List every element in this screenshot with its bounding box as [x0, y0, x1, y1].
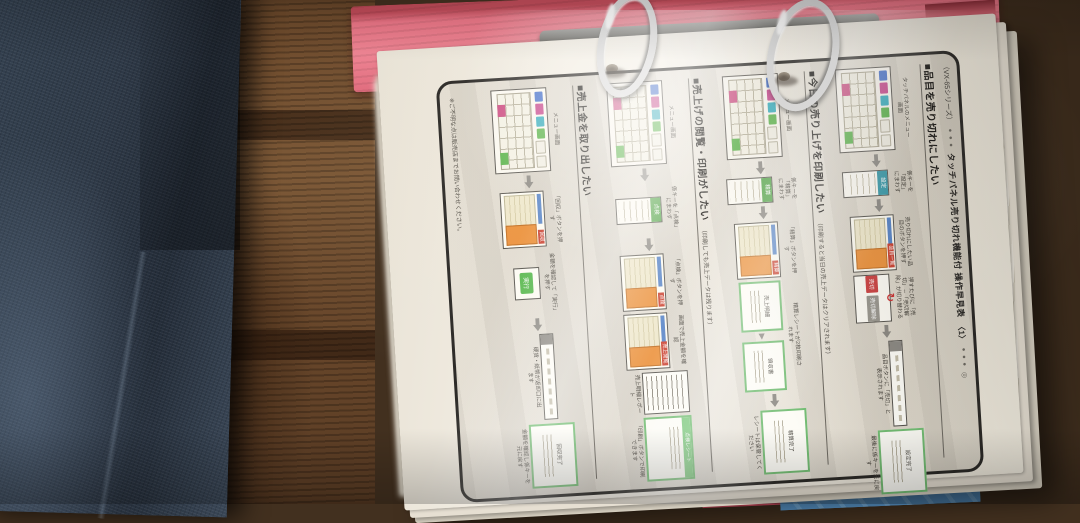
rotate-arrow-icon: ↻	[884, 293, 898, 303]
printout-strip	[888, 340, 907, 427]
screen-label: 売上閲覧	[661, 341, 668, 365]
key-icon	[879, 70, 888, 81]
flow-step: 設定完了最後に係キーを元に戻す	[862, 428, 928, 496]
key-icon	[652, 148, 663, 161]
step-annotation: 金額を確認し係キーを元に戻す	[513, 427, 530, 487]
green-box-label: 設定完了	[904, 449, 913, 471]
screen-header	[771, 224, 777, 254]
clear-button: 売切解除	[867, 295, 881, 322]
result-green-box: 精算完了	[760, 408, 810, 475]
screen-label: 精算	[772, 260, 779, 274]
soldout-button: 売切	[865, 275, 878, 293]
flow-step	[870, 154, 883, 168]
screen-header	[536, 194, 542, 224]
decorative-dots: ● ● ●	[960, 348, 967, 368]
key-icon	[767, 126, 778, 139]
key-icon	[880, 134, 891, 147]
key-icon	[881, 107, 890, 118]
green-box-header: 点検レシート	[682, 417, 694, 477]
green-box-label: 回収完了	[555, 443, 564, 465]
flow-step: 係キーを「精算」にまわす精算	[726, 175, 797, 205]
green-box-label: 領収書	[766, 358, 775, 375]
flow-step	[757, 206, 770, 220]
touch-panel-screenshot	[491, 87, 552, 174]
flow-step: 品目ボタンに「売切」と表示されます	[872, 340, 908, 428]
receipt-pair: 売上明細▶領収書	[738, 280, 787, 393]
step-annotation: 売上明細レポート	[626, 375, 642, 414]
text-lines	[543, 434, 556, 477]
flow-arrow-icon	[643, 238, 656, 252]
soldout-toggle-screen: 売切売切解除↻	[853, 274, 892, 324]
section-4: ■売上金を取り出したいメニュー画面「回収」ボタンを押す回収金額を確認して「実行」…	[474, 82, 614, 490]
flow-step	[873, 199, 886, 213]
key-icon	[651, 97, 660, 108]
key-row	[877, 70, 892, 146]
flow-step	[643, 238, 656, 252]
key-icon	[616, 146, 625, 158]
flow-step: 回収完了金額を確認し係キーを元に戻す	[512, 421, 578, 490]
key-icon	[651, 84, 660, 95]
step-annotation: 「印刷」ボタンで印刷できます	[628, 421, 645, 481]
key-icon	[652, 134, 663, 147]
key-icon	[880, 95, 889, 106]
key-icon	[768, 141, 779, 154]
section-3: ■売上げの閲覧・印刷がしたい（印刷しても売上データは残ります）メニュー画面係キー…	[590, 75, 730, 483]
flow-step	[754, 161, 767, 175]
key-icon	[536, 116, 545, 127]
flow-step: 硬貨・紙幣が返却口に出ます	[523, 333, 559, 421]
flow-step: 精算完了レシートは保管してください	[744, 408, 810, 476]
series-label: （VX-65シリーズ）	[940, 62, 954, 124]
key-icon	[880, 120, 891, 133]
key-icon	[537, 155, 548, 168]
step-annotation: 最後に係キーを元に戻す	[862, 433, 879, 493]
text-lines	[774, 420, 787, 463]
flow-step	[768, 394, 781, 408]
screen-list	[854, 218, 887, 252]
screen-body	[845, 173, 876, 195]
flow-step: 押すたびに「売切」⇔「売切解除」が切り替わる売切売切解除↻	[853, 272, 915, 324]
key-icon	[732, 138, 741, 150]
document-number: 〈1〉	[956, 322, 968, 343]
screen-header: 設定	[877, 171, 888, 196]
flow-arrow-icon	[638, 168, 651, 182]
step-annotation: 「回収」ボタンを押す	[546, 192, 562, 244]
screen-list	[624, 257, 657, 291]
flow-step	[531, 318, 544, 332]
result-green-box: 回収完了	[529, 422, 579, 489]
flow-arrow-icon	[757, 206, 770, 220]
green-box-label: 売上明細	[762, 295, 771, 317]
strip-cap	[540, 334, 553, 345]
flow-arrow-icon	[531, 318, 544, 332]
document-border-box: （VX-65シリーズ） ● ● ● タッチパネル売り切れ機能付 操作早見表 〈1…	[436, 50, 985, 503]
result-green-box: 点検レシート	[644, 415, 696, 482]
flow-step: 金額を確認して「実行」を押す実行	[512, 249, 558, 316]
key-icon	[536, 104, 545, 115]
step-annotation: 精算レシートが2枚印刷されます	[784, 302, 801, 367]
key-icon	[613, 98, 622, 110]
step-annotation: 係キーを「設定」にまわす	[891, 169, 912, 194]
strip-cap	[889, 341, 902, 352]
touch-panel-screenshot	[834, 66, 895, 153]
section-2: ■今日の売り上げを印刷したい（印刷すると当日の売上データはクリアされます）メニュ…	[706, 68, 846, 476]
flow-step: 売上明細レポート	[626, 370, 691, 416]
screen-list	[627, 316, 660, 350]
result-green-box: 売上明細	[738, 280, 783, 332]
flow-step: 「精算」ボタンを押す精算	[734, 220, 798, 280]
screen-label: 点検	[658, 292, 665, 306]
step-annotation: メニュー画面	[666, 105, 675, 138]
execute-button: 実行	[520, 273, 534, 294]
key-switch-screen: 点検	[615, 196, 663, 225]
text-lines	[892, 440, 905, 483]
step-annotation: 品目ボタンに「売切」と表示されます	[873, 352, 890, 417]
result-green-box: 領収書	[742, 340, 787, 392]
key-icon	[841, 84, 850, 96]
step-annotation: 金額を確認して「実行」を押す	[541, 252, 558, 312]
item-list-screen: 売上閲覧	[623, 312, 670, 371]
screen-header: 点検	[650, 197, 661, 222]
report-sample	[642, 370, 690, 415]
text-lines	[753, 350, 765, 383]
text-lines	[750, 290, 762, 323]
key-icon	[879, 83, 888, 94]
key-icon	[768, 102, 777, 113]
screen-label: 回収	[538, 230, 545, 244]
step-annotation: 係キーを「点検」にまわす	[663, 184, 679, 232]
flow-step: 「回収」ボタンを押す回収	[499, 190, 563, 250]
item-list-screen: 回収	[499, 191, 546, 250]
step-annotation: 画面で売上金額を確認	[670, 313, 686, 365]
decorative-dots: ● ● ●	[946, 129, 953, 149]
screen-panel	[625, 287, 657, 309]
flow-step: 係キーを「設定」にまわす設定	[842, 168, 913, 198]
screen-panel	[855, 248, 887, 270]
flow-step: 係キーを「点検」にまわす点検	[614, 182, 679, 237]
flow-arrow-icon	[880, 324, 893, 338]
screen-list	[738, 225, 771, 259]
key-icon	[844, 132, 853, 144]
screen-panel	[505, 224, 537, 246]
screen-body	[729, 180, 760, 202]
report-lines	[646, 374, 686, 410]
flow-step: 精算レシートが2枚印刷されます売上明細▶領収書	[738, 279, 803, 393]
key-switch-screen: 設定	[842, 169, 890, 198]
key-icon	[500, 153, 509, 165]
flow-step: 「点検」ボタンを押す点検	[619, 252, 683, 312]
document-footer: ※ご不明な点は販売店までお問い合わせください。	[448, 98, 465, 235]
step-annotation: レシートは保管してください	[745, 414, 762, 474]
quick-reference-document: （VX-65シリーズ） ● ● ● タッチパネル売り切れ機能付 操作早見表 〈1…	[409, 45, 994, 508]
printout-strip	[539, 333, 558, 420]
denim-shadow	[140, 0, 240, 250]
key-icon	[535, 91, 544, 102]
step-annotation: 「精算」ボタンを押す	[780, 223, 796, 275]
flow-step: 点検レシート「印刷」ボタンで印刷できます	[627, 415, 695, 483]
corner-mark: ◎	[960, 372, 968, 379]
section-subtext: （印刷しても売上データは残ります）	[700, 227, 712, 329]
text-lines	[669, 427, 682, 470]
flow-arrow-icon	[754, 161, 767, 175]
flow-step: タッチパネルのメニュー画面	[834, 65, 911, 153]
key-icon	[498, 105, 507, 117]
flow-step	[880, 324, 893, 338]
key-row	[649, 84, 664, 160]
flow-step: メニュー画面	[491, 87, 561, 175]
step-annotation: 係キーを「精算」にまわす	[775, 176, 796, 201]
item-list-screen: 精算	[734, 221, 781, 280]
key-row	[533, 91, 548, 167]
flow-arrow-icon	[873, 199, 886, 213]
screen-body	[618, 200, 649, 222]
flow-arrow-icon	[522, 175, 535, 189]
section-1: ■品目を売り切れにしたいタッチパネルのメニュー画面係キーを「設定」にまわす設定売…	[821, 61, 961, 469]
screen-header	[656, 256, 662, 286]
screen-panel	[629, 346, 661, 368]
key-icon	[653, 121, 662, 132]
key-switch-screen: 精算	[726, 177, 774, 206]
screen-list	[503, 194, 536, 228]
flow-step: 画面で売上金額を確認売上閲覧	[623, 311, 687, 371]
step-annotation: メニュー画面	[550, 112, 559, 145]
item-list-screen: 点検	[619, 253, 666, 312]
strip-ticks	[895, 355, 902, 421]
key-icon	[769, 114, 778, 125]
flow-step	[638, 168, 651, 182]
key-icon	[537, 128, 546, 139]
step-annotation: タッチパネルのメニュー画面	[893, 75, 910, 140]
screen-header: 精算	[761, 178, 772, 203]
flow-arrow-icon	[870, 154, 883, 168]
flow-arrow-icon	[768, 394, 781, 408]
mini-arrow-icon: ▶	[758, 333, 767, 340]
step-annotation: 売り切れにしたい品目のボタンを押す	[896, 215, 912, 267]
step-annotation: 硬貨・紙幣が返却口に出ます	[524, 345, 541, 410]
item-list-screen: 品目一覧	[849, 214, 896, 273]
green-box-label: 精算完了	[787, 430, 796, 452]
result-green-box: 設定完了	[878, 428, 928, 495]
flow-step	[522, 175, 535, 189]
document-sections: ■品目を売り切れにしたいタッチパネルのメニュー画面係キーを「設定」にまわす設定売…	[474, 61, 962, 491]
execute-button-screen: 実行	[513, 266, 541, 300]
key-icon	[652, 109, 661, 120]
key-icon	[536, 141, 547, 154]
key-icon	[729, 91, 738, 103]
strip-ticks	[546, 348, 553, 414]
screen-label: 品目一覧	[887, 243, 894, 267]
flow-step: 売り切れにしたい品目のボタンを押す品目一覧	[849, 213, 913, 273]
step-annotation: 「点検」ボタンを押す	[666, 255, 682, 307]
screen-panel	[740, 255, 772, 277]
